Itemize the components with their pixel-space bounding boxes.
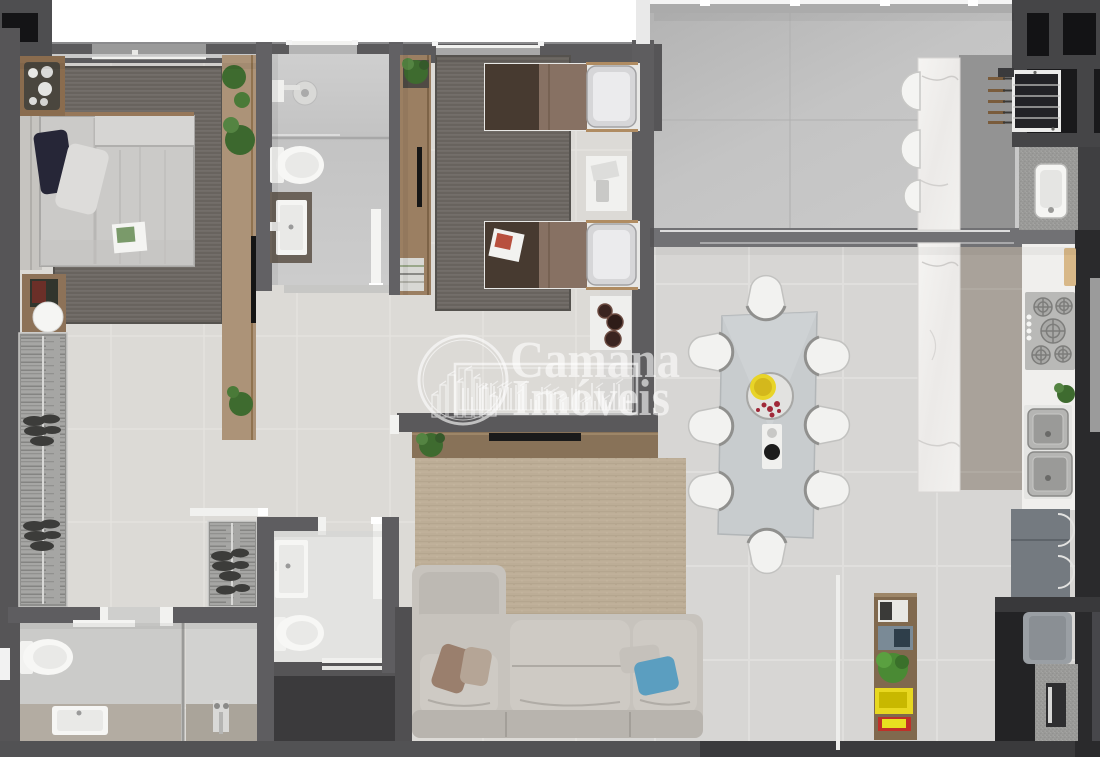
- svg-text:Imóveis: Imóveis: [512, 370, 670, 427]
